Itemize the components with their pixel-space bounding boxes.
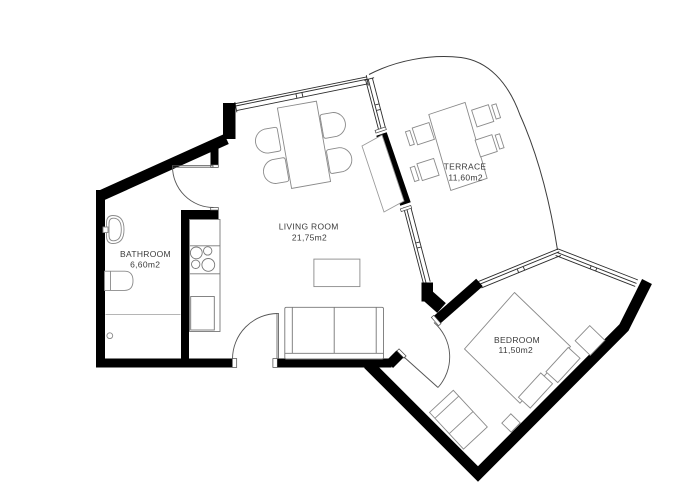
svg-text:BATHROOM: BATHROOM [120,249,171,259]
svg-text:11,50m2: 11,50m2 [499,345,534,355]
svg-text:TERRACE: TERRACE [444,162,487,172]
svg-text:BEDROOM: BEDROOM [494,335,540,345]
svg-text:11,60m2: 11,60m2 [448,173,483,183]
svg-text:LIVING ROOM: LIVING ROOM [279,221,339,231]
svg-text:21,75m2: 21,75m2 [292,232,327,242]
svg-text:6,60m2: 6,60m2 [130,260,160,270]
